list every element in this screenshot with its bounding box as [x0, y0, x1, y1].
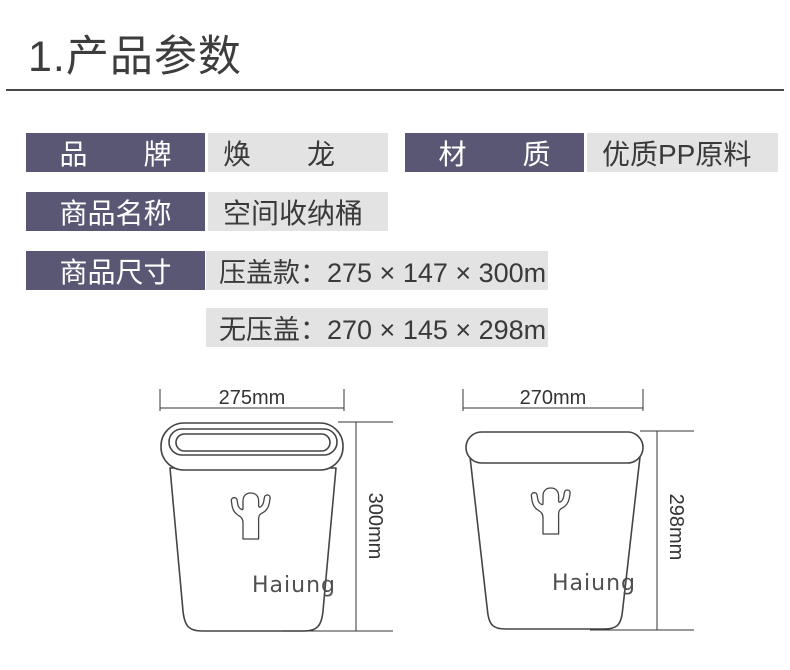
material-value: 优质PP原料	[587, 133, 778, 172]
bin-right-top-band	[466, 432, 643, 463]
brand-logo-text-left: Haiung	[252, 573, 336, 598]
dim-height-right-label: 298mm	[665, 494, 687, 561]
product-size-label: 商品尺寸	[26, 251, 205, 290]
brand-value: 焕 龙	[208, 133, 388, 172]
title-divider	[6, 89, 784, 91]
product-name-label: 商品名称	[26, 192, 205, 231]
bin-right-body	[469, 448, 641, 629]
page-title: 1.产品参数	[28, 22, 242, 84]
bin-right: 270mm Haiung 298mm	[463, 387, 694, 630]
brand-logo-text-right: Haiung	[552, 571, 636, 596]
dim-width-left-label: 275mm	[219, 387, 286, 409]
product-size-value-open: 无压盖：270 × 145 × 298mm	[206, 308, 548, 347]
product-size-value-lidded: 压盖款：275 × 147 × 300mm	[206, 251, 548, 290]
product-diagram: 275mm Haiung 300mm 270mm Haiung 298mm	[128, 378, 728, 662]
bin-left-body	[170, 468, 336, 631]
dim-width-right-label: 270mm	[520, 387, 587, 409]
bin-left: 275mm Haiung 300mm	[160, 387, 393, 631]
brand-label: 品 牌	[26, 133, 205, 172]
material-label: 材 质	[405, 133, 584, 172]
bin-left-rim	[161, 423, 343, 470]
product-name-value: 空间收纳桶	[208, 192, 388, 231]
dim-height-left-label: 300mm	[364, 493, 386, 560]
